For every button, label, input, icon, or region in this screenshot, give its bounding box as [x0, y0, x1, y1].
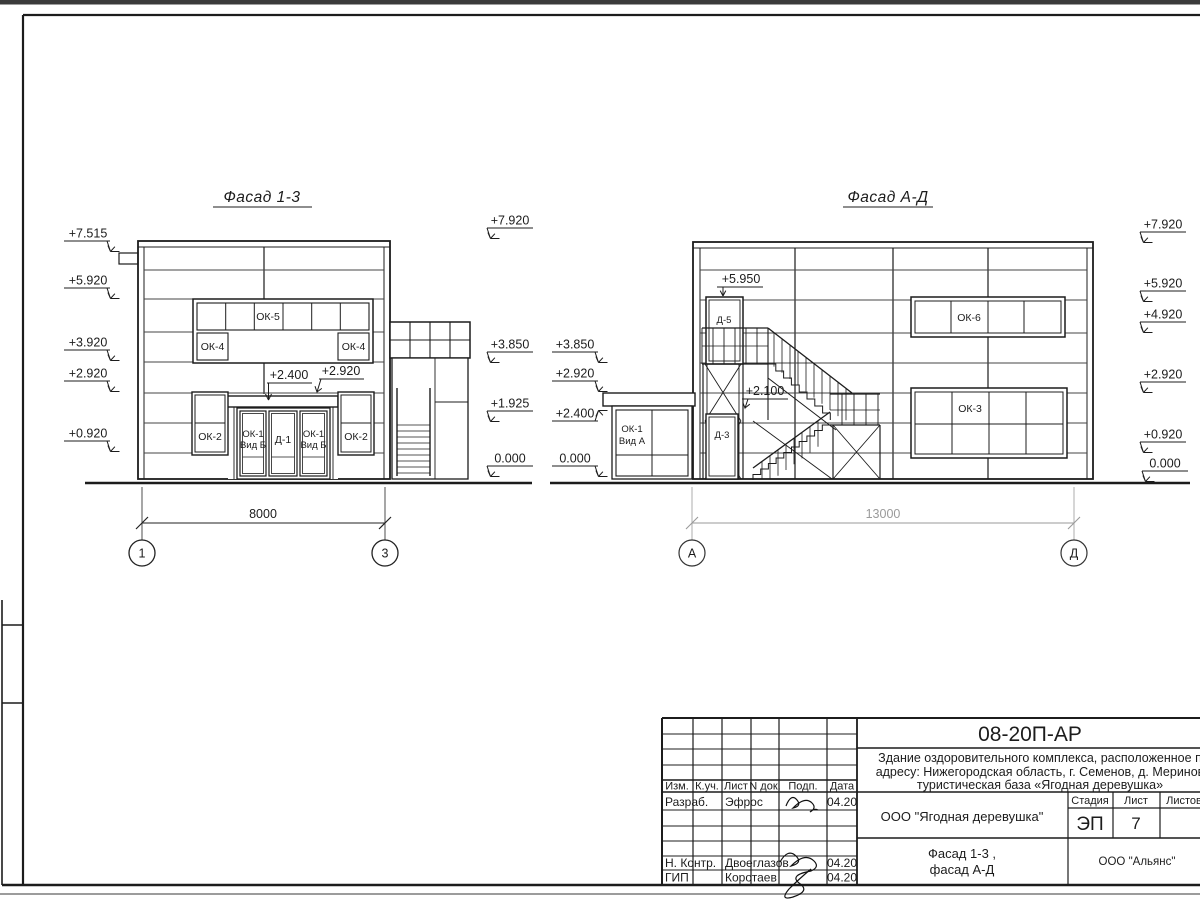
axis-label-d: Д: [1070, 547, 1079, 561]
dimension-label: 13000: [866, 507, 901, 521]
elevation-marks-fad-right: +7.920 +5.920 +4.920 +2.920 +0.920 0.000: [1140, 218, 1188, 482]
elevation-mark: +7.920: [491, 214, 530, 228]
project-description-line3: туристическая база «Ягодная деревушка»: [917, 778, 1163, 792]
dimension-label: 8000: [249, 507, 277, 521]
elevation-mark: +5.920: [69, 274, 108, 288]
col-data: Дата: [830, 781, 855, 793]
elevation-mark: +1.925: [491, 397, 530, 411]
elevation-mark: +4.920: [1144, 308, 1183, 322]
window-ok2-left: [192, 392, 228, 455]
sheet-number: 7: [1131, 814, 1140, 833]
col-izm: Изм.: [665, 781, 689, 793]
elevation-mark: 0.000: [494, 452, 525, 466]
window-label-ok5: ОК-5: [256, 311, 280, 323]
col-podp: Подп.: [788, 781, 817, 793]
axis-label-a: А: [688, 547, 697, 561]
project-description-line1: Здание оздоровительного комплекса, распо…: [878, 751, 1200, 765]
elevation-marks-fad-left: +3.850 +2.920 +2.400 0.000: [552, 338, 608, 477]
window-label-ok6: ОК-6: [957, 312, 981, 324]
door-label-ok1-right: ОК-1: [303, 429, 324, 440]
sheet-title-line2: фасад А-Д: [930, 862, 995, 877]
row-razrab-name: Эфрос: [725, 795, 763, 809]
elevation-mark: +3.850: [491, 338, 530, 352]
elevation-mark: +7.515: [69, 227, 108, 241]
door-d3: [706, 414, 738, 479]
row-nkontr-date: 04.20: [827, 856, 857, 870]
document-code: 08-20П-АР: [978, 723, 1082, 746]
sheet-title-line1: Фасад 1-3 ,: [928, 846, 996, 861]
sheets-label: Листов: [1166, 795, 1200, 807]
door-label-ok1-right-2: Вид Б: [300, 440, 326, 451]
door-label-d1: Д-1: [275, 434, 292, 446]
window-ok6: [911, 297, 1065, 337]
project-description-line2: адресу: Нижегородская область, г. Семено…: [876, 765, 1200, 779]
elevation-mark: +3.920: [69, 336, 108, 350]
annotation-2920: +2.920: [322, 364, 361, 378]
window-label-ok1-vida-2: Вид А: [619, 436, 646, 447]
row-gip-date: 04.20: [827, 871, 857, 885]
elevation-mark: 0.000: [559, 452, 590, 466]
elevation-marks-f13-right: +7.920 +3.850 +1.925 0.000: [487, 214, 533, 477]
window-label-ok4-left: ОК-4: [201, 341, 225, 353]
annex-ok1: [603, 393, 695, 479]
window-ok3: [911, 388, 1067, 458]
window-top-edge: [0, 0, 1200, 5]
col-list: Лист: [724, 781, 748, 793]
facade-1-3-title: Фасад 1-3: [223, 189, 300, 206]
col-ndok: N док.: [749, 781, 780, 793]
row-razrab-date: 04.20: [827, 795, 857, 809]
elevation-marks-f13-left: +7.515 +5.920 +3.920 +2.920 +0.920: [64, 227, 120, 452]
title-block: 08-20П-АР Здание оздоровительного компле…: [662, 718, 1200, 898]
elevation-mark: +7.920: [1144, 218, 1183, 232]
window-ok2-right: [338, 392, 374, 455]
facades-drawing: Фасад 1-3 ОК-5 ОК: [0, 0, 1200, 900]
row-gip-role: ГИП: [665, 871, 689, 885]
elevation-mark: +2.920: [69, 367, 108, 381]
annotation-5950: +5.950: [722, 272, 761, 286]
dimension-8000: [129, 487, 398, 566]
window-label-ok4-right: ОК-4: [342, 341, 366, 353]
facade-a-d-title: Фасад А-Д: [847, 189, 928, 206]
elevation-mark: +3.850: [556, 338, 595, 352]
window-label-ok1-vida: ОК-1: [621, 424, 642, 435]
facade-1-3: Фасад 1-3 ОК-5 ОК: [64, 189, 533, 566]
door-label-ok1-left-2: Вид Б: [240, 440, 266, 451]
stair-annex: [390, 322, 470, 479]
window-label-ok2-left: ОК-2: [198, 431, 222, 443]
elevation-mark: +0.920: [69, 427, 108, 441]
elevation-mark: +0.920: [1144, 428, 1183, 442]
client-name: ООО "Ягодная деревушка": [881, 809, 1044, 824]
elevation-mark: +2.400: [556, 407, 595, 421]
window-label-ok3: ОК-3: [958, 403, 982, 415]
row-nkontr-role: Н. Контр.: [665, 856, 716, 870]
door-label-d5: Д-5: [717, 315, 732, 326]
row-razrab-role: Разраб.: [665, 795, 708, 809]
door-label-ok1-left: ОК-1: [242, 429, 263, 440]
elevation-mark: +5.920: [1144, 277, 1183, 291]
drawing-sheet: Фасад 1-3 ОК-5 ОК: [0, 0, 1200, 900]
stage-value: ЭП: [1076, 814, 1103, 835]
row-gip-name: Коротаев: [725, 871, 777, 885]
axes-ad: [679, 540, 1087, 566]
facade-a-d: Фасад А-Д ОК-6: [550, 189, 1190, 566]
elevation-mark: +2.920: [556, 367, 595, 381]
sheet-label: Лист: [1124, 795, 1148, 807]
elevation-mark: +2.920: [1144, 368, 1183, 382]
org-name: ООО "Альянс": [1099, 856, 1176, 868]
col-kuch: К.уч.: [695, 781, 719, 793]
window-group-upper: [193, 299, 373, 363]
row-nkontr-name: Двоеглазов: [725, 856, 789, 870]
elevation-mark: 0.000: [1149, 457, 1180, 471]
window-label-ok2-right: ОК-2: [344, 431, 368, 443]
axis-label-3: 3: [382, 547, 389, 561]
annotation-2100: +2.100: [746, 384, 785, 398]
annotation-2400: +2.400: [270, 368, 309, 382]
stage-label: Стадия: [1071, 795, 1109, 807]
door-label-d3: Д-3: [715, 430, 730, 441]
axis-label-1: 1: [139, 547, 146, 561]
